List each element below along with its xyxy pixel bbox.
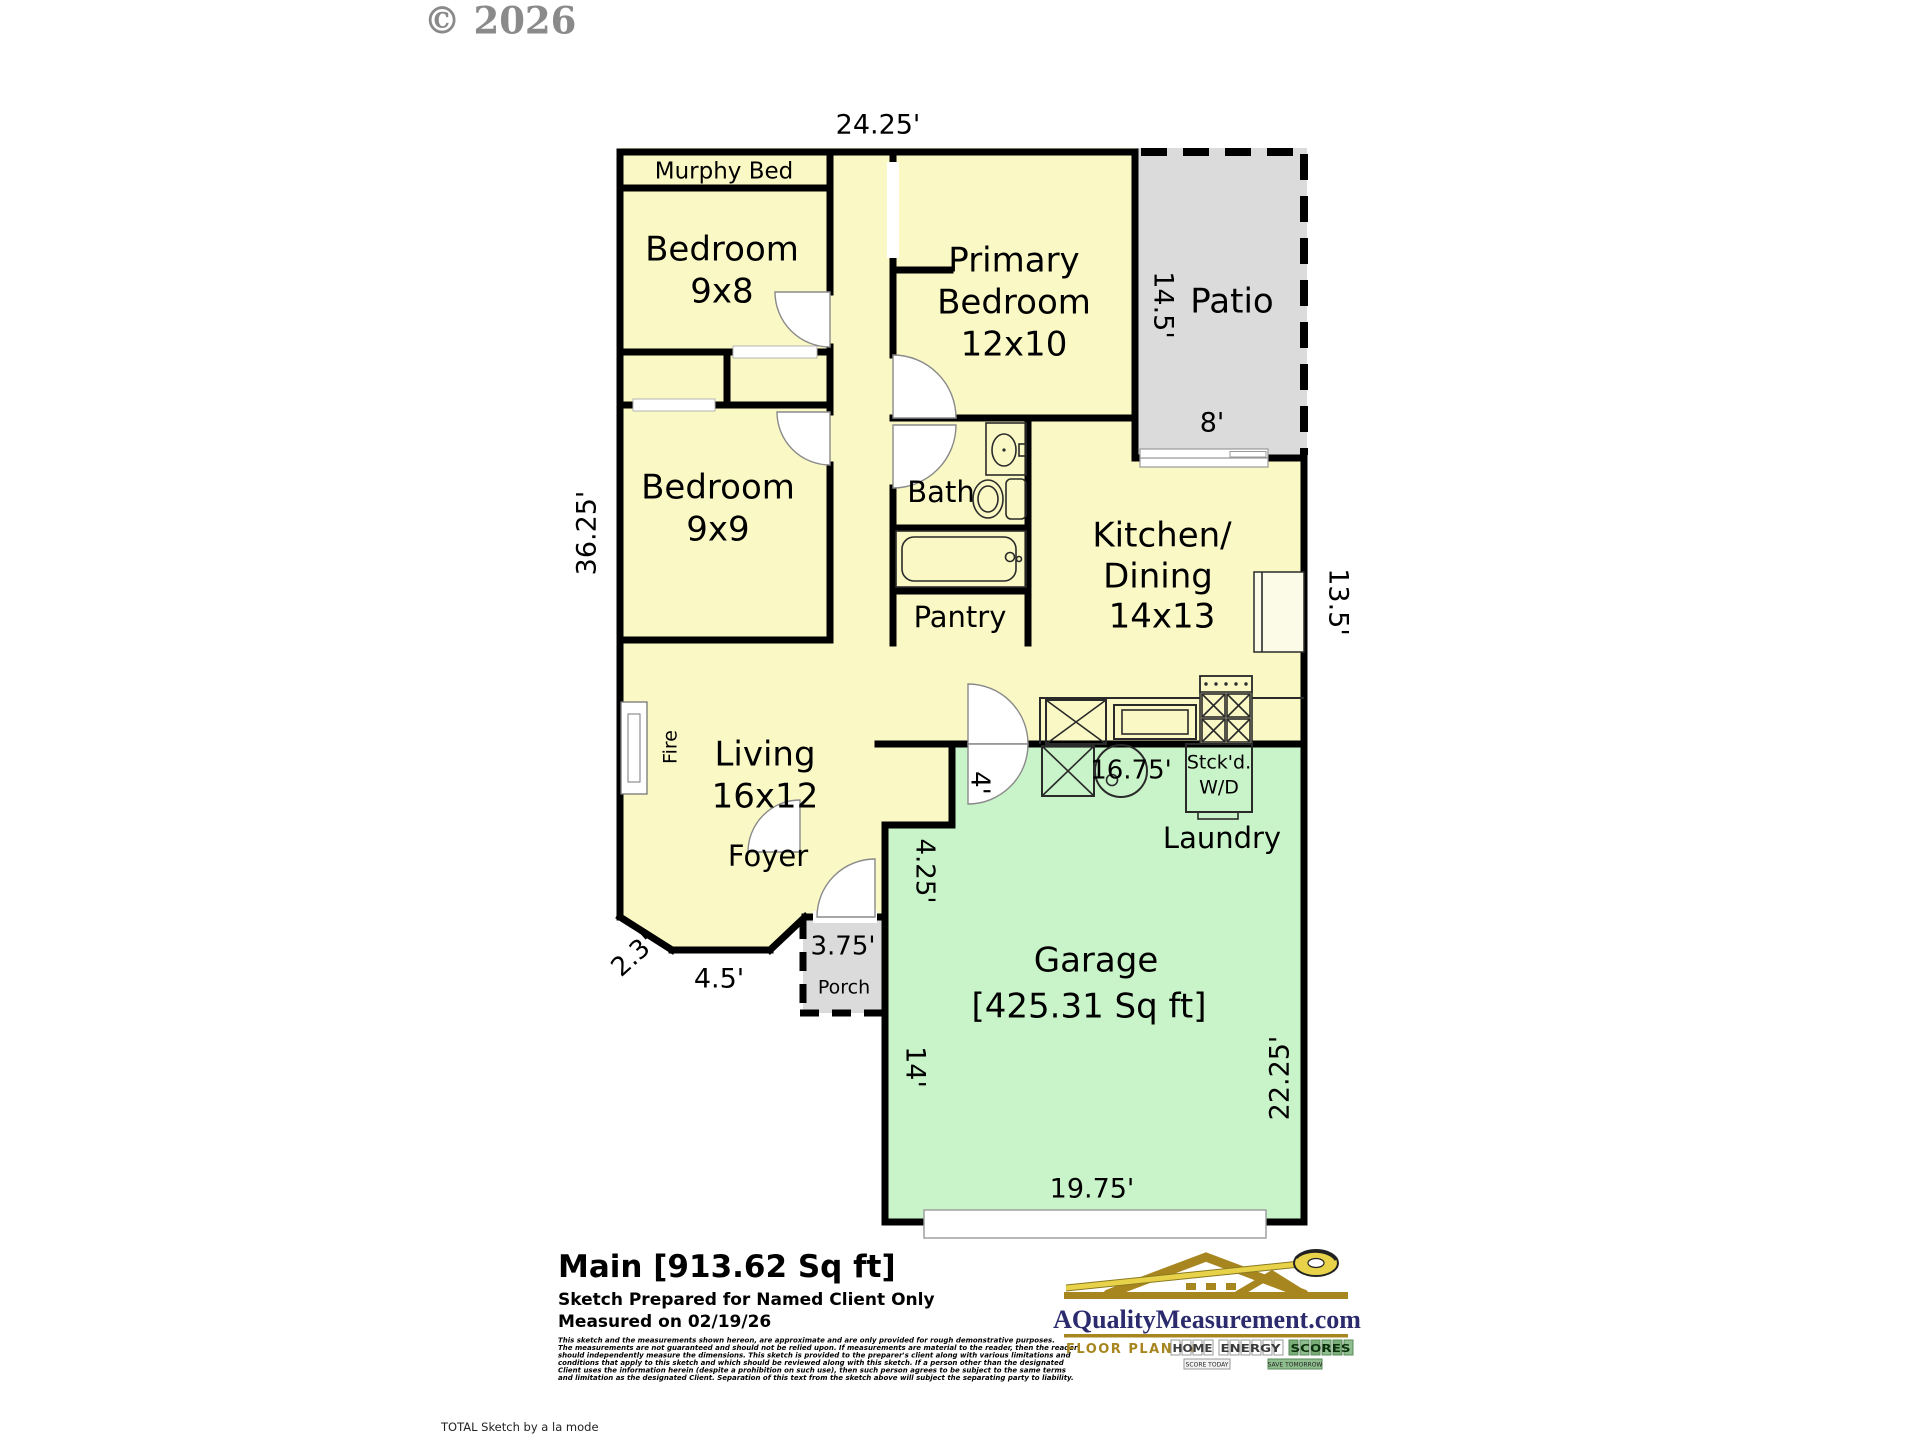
garage-door-opening <box>924 1210 1266 1238</box>
floor-plan-sketch: © 2026 24.25' 36.25' Murphy Bed Bedroom … <box>0 0 1920 1440</box>
dim-garage-left: 14' <box>900 1046 931 1088</box>
copyright-text: © 2026 <box>424 0 577 43</box>
room-label-patio: Patio <box>1190 282 1273 322</box>
room-size-bedroom3: 9x9 <box>686 510 749 550</box>
room-label-primary-1: Primary <box>948 241 1079 281</box>
room-label-bedroom2: Bedroom <box>645 230 799 270</box>
dim-left: 36.25' <box>572 491 603 576</box>
fireplace-label: Fire <box>660 730 682 764</box>
closet-opening-top <box>733 346 817 358</box>
room-label-bedroom3: Bedroom <box>641 468 795 508</box>
room-label-pantry: Pantry <box>914 600 1007 634</box>
logo-site-name: AQualityMeasurement.com <box>1053 1305 1361 1334</box>
room-label-kitchen-2: Dining <box>1103 557 1213 597</box>
dim-garage-right: 22.25' <box>1265 1036 1296 1121</box>
room-label-living: Living <box>714 735 815 775</box>
footer-measured: Measured on 02/19/26 <box>558 1312 771 1332</box>
room-label-kitchen-1: Kitchen/ <box>1092 516 1232 556</box>
logo: AQualityMeasurement.com FLOOR PLANS & HO… <box>1053 1250 1361 1369</box>
fireplace-icon <box>621 702 647 794</box>
room-label-bath: Bath <box>907 475 974 509</box>
room-label-primary-2: Bedroom <box>937 283 1091 323</box>
stove-icon <box>1200 676 1252 744</box>
room-size-primary: 12x10 <box>961 325 1068 365</box>
disclaimer-line: and limitation as the designated Client.… <box>558 1374 1074 1382</box>
closet-opening-bottom <box>633 399 715 411</box>
room-label-porch: Porch <box>818 977 870 999</box>
primary-cased-opening <box>887 162 899 258</box>
logo-rule <box>1064 1334 1348 1338</box>
dim-patio-height: 14.5' <box>1148 271 1179 339</box>
dim-garage-notch: 4' <box>965 771 995 795</box>
dim-bay-bottom: 4.5' <box>694 964 744 995</box>
wd-label-1: Stck'd. <box>1187 752 1251 774</box>
room-area-garage: [425.31 Sq ft] <box>972 987 1207 1027</box>
logo-word-energy: ENERGY <box>1221 1343 1281 1355</box>
badge-save-tomorrow: SAVE TOMORROW <box>1268 1362 1323 1369</box>
room-size-living: 16x12 <box>712 777 819 817</box>
footer-prepared: Sketch Prepared for Named Client Only <box>558 1290 935 1310</box>
dim-porch-width: 3.75' <box>810 932 875 962</box>
wd-label-2: W/D <box>1199 777 1239 799</box>
logo-badges: SCORE TODAY SAVE TOMORROW <box>1184 1359 1322 1369</box>
dim-garage-bottom: 19.75' <box>1050 1174 1135 1205</box>
room-size-kitchen: 14x13 <box>1109 597 1216 637</box>
dim-top: 24.25' <box>836 110 921 141</box>
room-label-laundry: Laundry <box>1163 821 1281 855</box>
dim-laundry-width: 16.75' <box>1090 756 1172 786</box>
room-label-foyer: Foyer <box>728 839 808 873</box>
logo-word-scores: SCORES <box>1291 1343 1351 1355</box>
fridge-icon <box>1254 572 1304 652</box>
room-size-bedroom2: 9x8 <box>690 272 753 312</box>
logo-word-home: HOME <box>1173 1343 1213 1355</box>
dim-kitchen-side: 13.5' <box>1323 568 1354 636</box>
patio-slider-icon <box>1140 449 1268 467</box>
dim-patio-width: 8' <box>1200 408 1225 439</box>
footer-title: Main [913.62 Sq ft] <box>558 1249 896 1285</box>
badge-score-today: SCORE TODAY <box>1186 1362 1229 1369</box>
room-label-garage: Garage <box>1034 941 1159 981</box>
total-sketch-credit: TOTAL Sketch by a la mode <box>440 1420 599 1434</box>
room-label-murphy: Murphy Bed <box>655 159 794 185</box>
footer: Main [913.62 Sq ft] Sketch Prepared for … <box>440 1249 1078 1434</box>
dim-garage-upper-left: 4.25' <box>910 838 940 903</box>
